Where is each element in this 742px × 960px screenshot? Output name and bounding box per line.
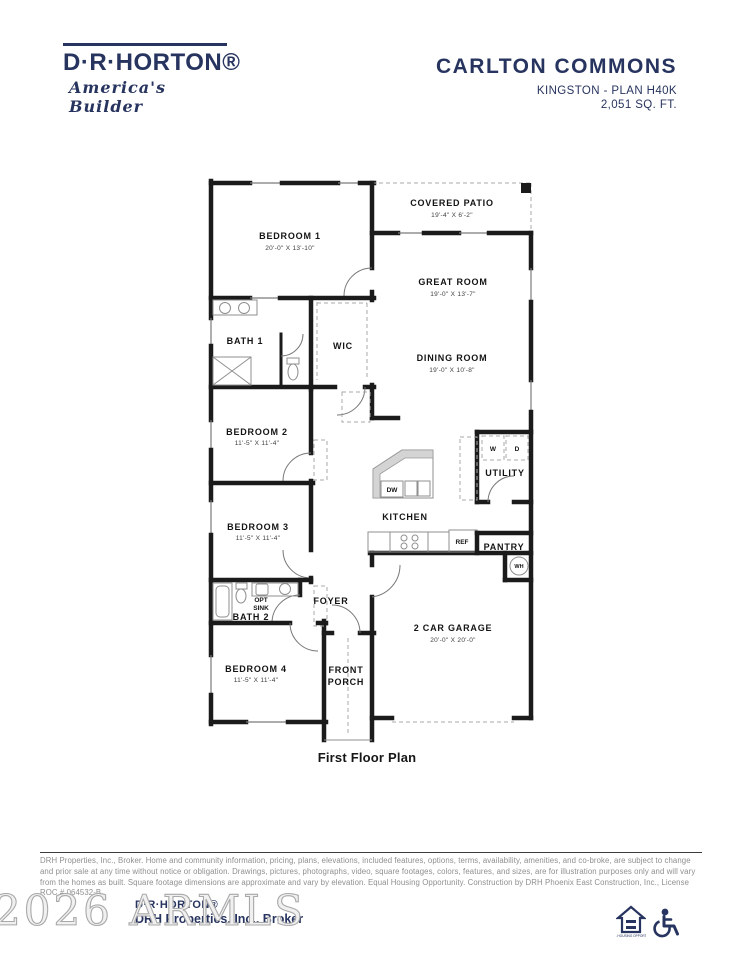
opt-sink-label-2: SINK — [253, 605, 269, 612]
front-porch-label-1: FRONT — [329, 665, 364, 675]
foyer-label: FOYER — [313, 596, 348, 606]
square-footage: 2,051 SQ. FT. — [436, 98, 677, 112]
bath2-label: BATH 2 — [233, 612, 270, 622]
bedroom3-label: BEDROOM 3 — [227, 522, 289, 532]
bath1-label: BATH 1 — [227, 336, 264, 346]
title-block: CARLTON COMMONS KINGSTON - PLAN H40K 2,0… — [436, 55, 677, 112]
footer-divider — [40, 852, 702, 853]
pantry-walls — [477, 533, 531, 580]
great-room-label: GREAT ROOM — [418, 277, 487, 287]
footer-logo-text: D·R·HORTON® — [135, 899, 303, 911]
utility-label: UTILITY — [485, 468, 525, 478]
bedroom2-label: BEDROOM 2 — [226, 427, 288, 437]
wic-label: WIC — [333, 341, 353, 351]
equal-housing-text: EQUAL HOUSING OPPORTUNITY — [616, 934, 646, 938]
logo-rule — [63, 43, 227, 46]
dining-room-label: DINING ROOM — [417, 353, 488, 363]
bedroom2-dims: 11'-5" X 11'-4" — [235, 440, 280, 447]
covered-patio-label: COVERED PATIO — [410, 198, 494, 208]
bedroom1-label: BEDROOM 1 — [259, 231, 321, 241]
garage-label: 2 CAR GARAGE — [414, 623, 493, 633]
covered-patio-dims: 19'-4" X 6'-2" — [431, 212, 473, 219]
dining-room-dims: 19'-0" X 10'-8" — [429, 367, 475, 374]
bedroom4-label: BEDROOM 4 — [225, 664, 287, 674]
covered-patio-outline — [372, 183, 531, 233]
garage-dims: 20'-0" X 20'-0" — [430, 637, 476, 644]
room-labels: BEDROOM 1 20'-0" X 13'-10" COVERED PATIO… — [225, 198, 525, 687]
accessibility-icon — [651, 907, 683, 941]
logo-tagline: America's Builder — [69, 78, 243, 116]
plan-name: KINGSTON - PLAN H40K — [436, 84, 677, 98]
washer-label: W — [490, 446, 497, 453]
floor-plan-drawing: BEDROOM 1 20'-0" X 13'-10" COVERED PATIO… — [195, 160, 555, 760]
drhorton-logo: D·R·HORTON® America's Builder — [63, 43, 243, 116]
dishwasher-label: DW — [387, 487, 399, 494]
great-room-dims: 19'-0" X 13'-7" — [430, 291, 476, 298]
bedroom3-dims: 11'-5" X 11'-4" — [236, 535, 281, 542]
front-porch-label-2: PORCH — [328, 677, 365, 687]
logo-brand-text: D·R·HORTON® — [63, 50, 243, 76]
bedroom1-walls — [211, 183, 374, 300]
equal-housing-icon: EQUAL HOUSING OPPORTUNITY — [616, 905, 646, 945]
utility-walls — [460, 432, 531, 502]
kitchen-label: KITCHEN — [382, 512, 428, 522]
bedroom4-dims: 11'-5" X 11'-4" — [234, 677, 279, 684]
bedroom1-dims: 20'-0" X 13'-10" — [265, 245, 315, 252]
opt-sink-label-1: OPT — [254, 597, 267, 604]
dryer-label: D — [515, 446, 520, 453]
pantry-label: PANTRY — [484, 542, 525, 552]
floor-plan-caption: First Floor Plan — [187, 750, 547, 765]
broker-line: DRH Properties, Inc., Broker — [135, 912, 303, 926]
refrigerator-label: REF — [456, 539, 469, 546]
foyer-walls — [324, 565, 400, 736]
community-title: CARLTON COMMONS — [436, 55, 677, 79]
kitchen-fixtures — [368, 450, 477, 552]
footer-brand-block: D·R·HORTON® DRH Properties, Inc., Broker — [135, 899, 303, 926]
water-heater-label: WH — [514, 564, 523, 570]
disclaimer-text: DRH Properties, Inc., Broker. Home and c… — [40, 856, 702, 899]
